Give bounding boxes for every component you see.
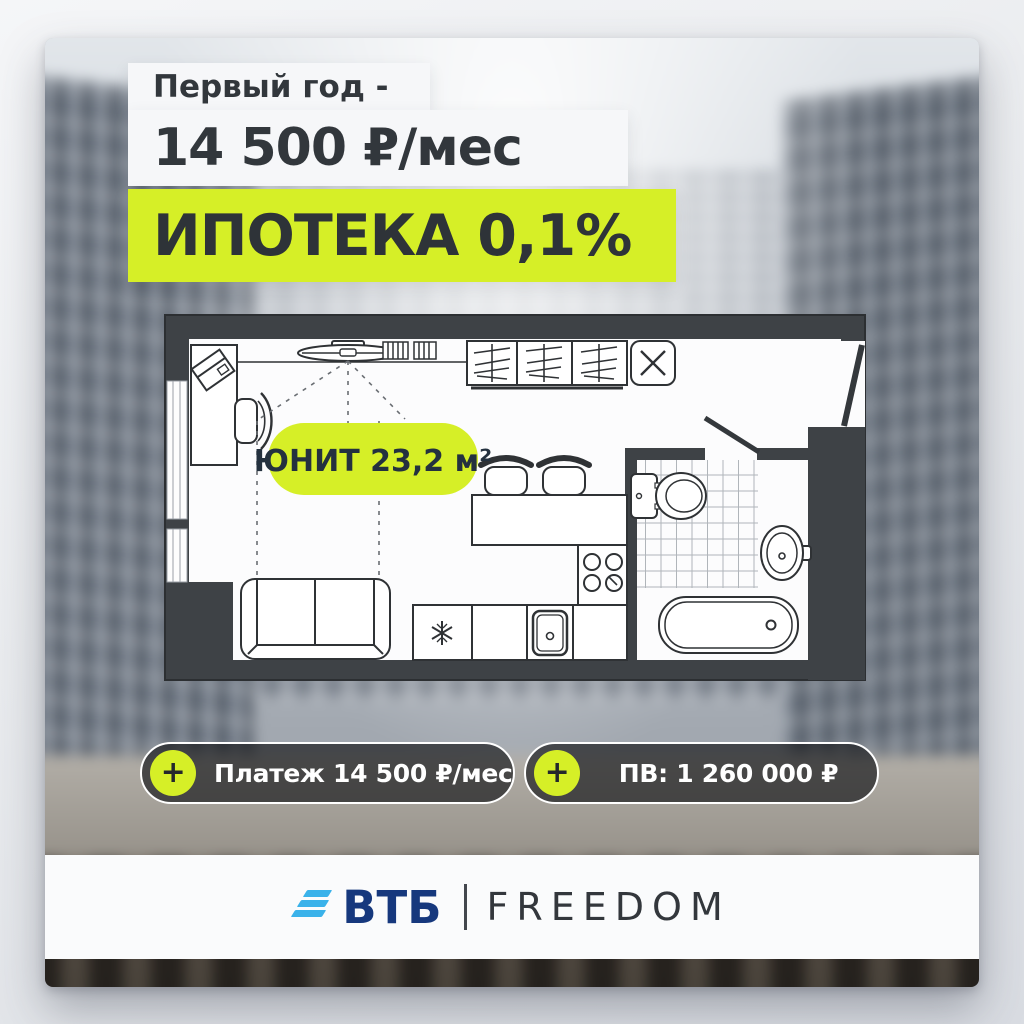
promo-line-first-year-text: Первый год - — [153, 69, 389, 105]
bar-counter-icon — [472, 495, 627, 545]
promo-line-monthly-price-text: 14 500 ₽/мес — [153, 118, 522, 178]
promo-line-mortgage-rate: ИПОТЕКА 0,1% — [128, 189, 676, 282]
toilet-icon — [631, 473, 706, 519]
ad-card: Первый год - 14 500 ₽/мес ИПОТЕКА 0,1% — [0, 0, 1024, 1024]
promo-line-monthly-price: 14 500 ₽/мес — [128, 110, 628, 186]
kitchen-counter-icon — [413, 605, 627, 660]
kitchen-sink-icon — [533, 611, 567, 655]
wardrobe-icon — [467, 341, 627, 388]
sofa-icon — [241, 579, 390, 659]
down-payment-badge-label: ПВ: 1 260 000 ₽ — [601, 759, 856, 788]
logo-divider — [464, 884, 467, 930]
vtb-logo: ВТБ FREEDOM — [293, 881, 731, 934]
payment-badge-label: Платеж 14 500 ₽/мес — [196, 759, 531, 788]
promo-line-first-year: Первый год - — [128, 63, 430, 110]
entry-door-icon — [841, 341, 865, 427]
plus-icon: + — [534, 750, 580, 796]
plus-glyph: + — [161, 758, 186, 788]
brand-wordmark: FREEDOM — [487, 885, 731, 929]
plus-glyph: + — [545, 758, 570, 788]
washing-machine-icon — [631, 341, 675, 385]
payment-badge[interactable]: + Платеж 14 500 ₽/мес — [140, 742, 515, 804]
unit-area-badge: ЮНИТ 23,2 м² — [254, 423, 492, 495]
unit-area-label: ЮНИТ 23,2 м² — [254, 444, 492, 479]
footer-logo-bar: ВТБ FREEDOM — [45, 855, 979, 959]
floor-plan: ЮНИТ 23,2 м² — [165, 315, 865, 680]
vtb-wordmark: ВТБ — [342, 881, 441, 934]
desk-icon — [191, 345, 237, 465]
plus-icon: + — [150, 750, 196, 796]
vtb-stripes-icon — [293, 890, 330, 920]
down-payment-badge[interactable]: + ПВ: 1 260 000 ₽ — [524, 742, 879, 804]
promo-line-mortgage-rate-text: ИПОТЕКА 0,1% — [153, 203, 631, 269]
window-icon — [167, 381, 187, 582]
bathtub-icon — [659, 597, 798, 653]
stove-icon — [578, 545, 627, 605]
